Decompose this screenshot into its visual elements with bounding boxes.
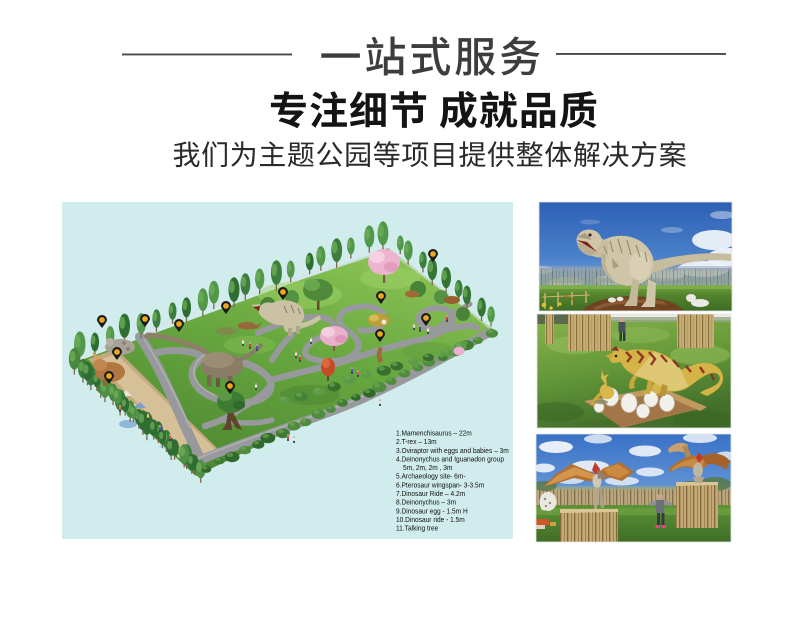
svg-text:2.T-rex – 13m: 2.T-rex – 13m: [396, 439, 437, 446]
svg-text:5.Archaeology site- 6m-: 5.Archaeology site- 6m-: [396, 473, 466, 480]
svg-text:9.Dinosaur egg - 1.5m H: 9.Dinosaur egg - 1.5m H: [396, 508, 468, 515]
svg-text:7.Dinosaur Ride – 4.2m: 7.Dinosaur Ride – 4.2m: [396, 491, 465, 498]
svg-text:3.Oviraptor with eggs and babi: 3.Oviraptor with eggs and babies – 3m: [396, 447, 509, 454]
svg-text:1.Mamenchisaurus – 22m: 1.Mamenchisaurus – 22m: [396, 430, 472, 437]
svg-text:6.Pterosaur wingspan- 3-3.5m: 6.Pterosaur wingspan- 3-3.5m: [396, 482, 484, 489]
svg-text:11.Talking tree: 11.Talking tree: [396, 525, 438, 532]
svg-text:5m, 2m, 2m , 3m: 5m, 2m, 2m , 3m: [403, 465, 453, 472]
svg-text:10.Dinosaur ride - 1.5m: 10.Dinosaur ride - 1.5m: [396, 517, 465, 524]
svg-text:8.Deinonychus – 3m: 8.Deinonychus – 3m: [396, 499, 456, 506]
svg-text:4.Deinonychus and Iguanadon gr: 4.Deinonychus and Iguanadon group: [396, 456, 504, 463]
